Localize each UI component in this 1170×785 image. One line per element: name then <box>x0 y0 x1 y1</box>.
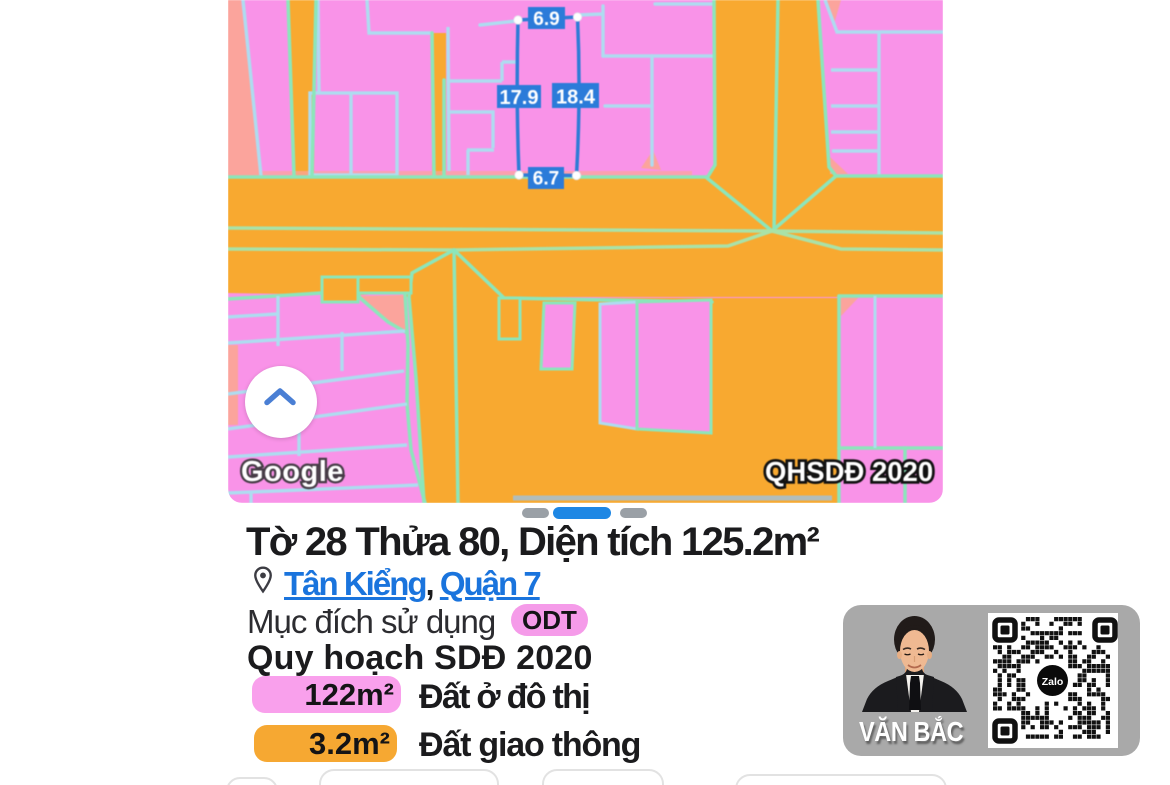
svg-text:6.7: 6.7 <box>533 169 559 190</box>
svg-text:Google: Google <box>241 456 344 488</box>
svg-text:17.9: 17.9 <box>500 87 539 109</box>
svg-text:QHSDĐ 2020: QHSDĐ 2020 <box>765 456 933 487</box>
svg-text:18.4: 18.4 <box>556 87 596 109</box>
svg-text:6.9: 6.9 <box>533 9 559 30</box>
svg-text:Zalo: Zalo <box>1042 676 1064 688</box>
